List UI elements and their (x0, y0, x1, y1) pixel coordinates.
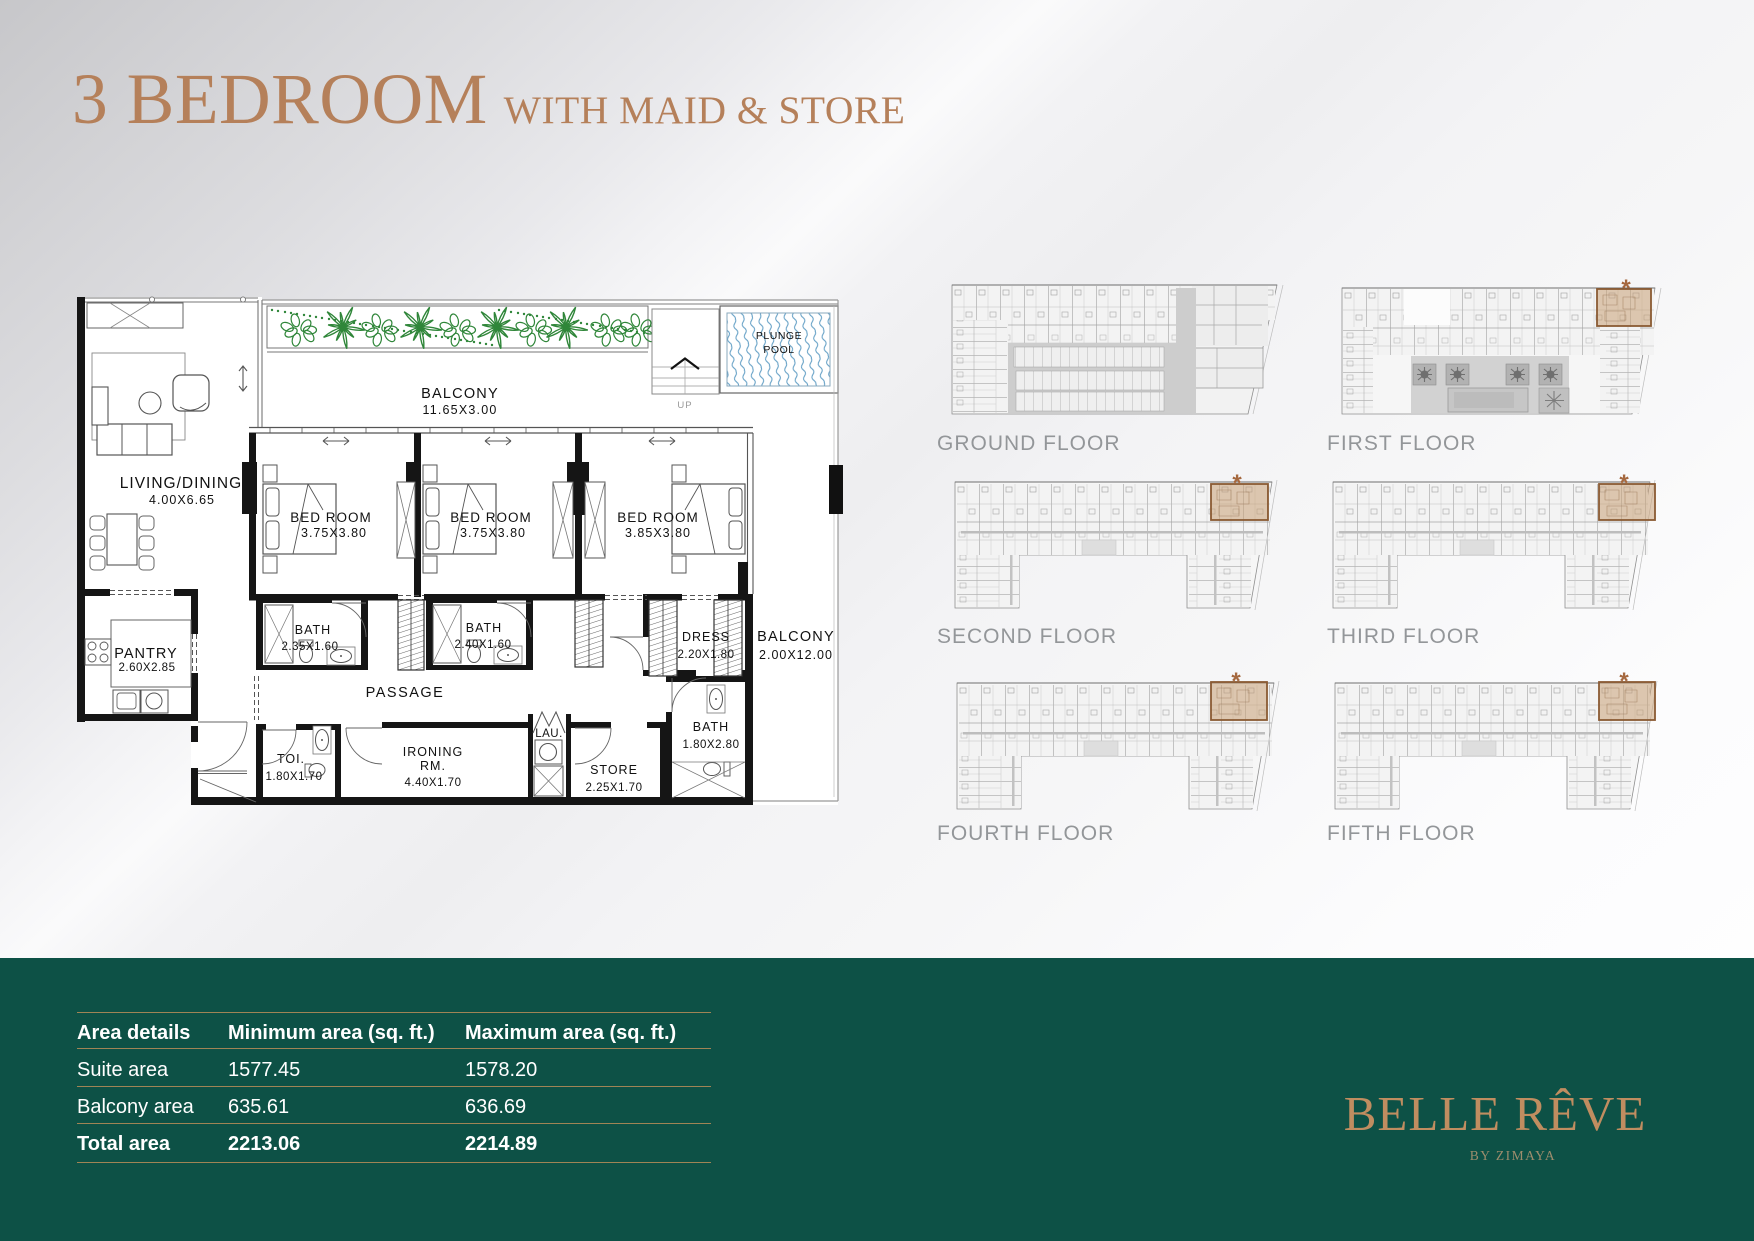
svg-text:*: * (1232, 470, 1242, 497)
svg-text:SECOND FLOOR: SECOND FLOOR (937, 625, 1117, 648)
svg-text:GROUND FLOOR: GROUND FLOOR (937, 432, 1121, 455)
svg-text:FIFTH FLOOR: FIFTH FLOOR (1327, 822, 1476, 845)
svg-text:FOURTH FLOOR: FOURTH FLOOR (937, 822, 1114, 845)
svg-text:*: * (1619, 668, 1629, 695)
svg-text:FIRST FLOOR: FIRST FLOOR (1327, 432, 1476, 455)
svg-text:THIRD FLOOR: THIRD FLOOR (1327, 625, 1480, 648)
svg-text:*: * (1231, 668, 1241, 695)
svg-text:*: * (1619, 470, 1629, 497)
svg-text:*: * (1621, 275, 1631, 302)
